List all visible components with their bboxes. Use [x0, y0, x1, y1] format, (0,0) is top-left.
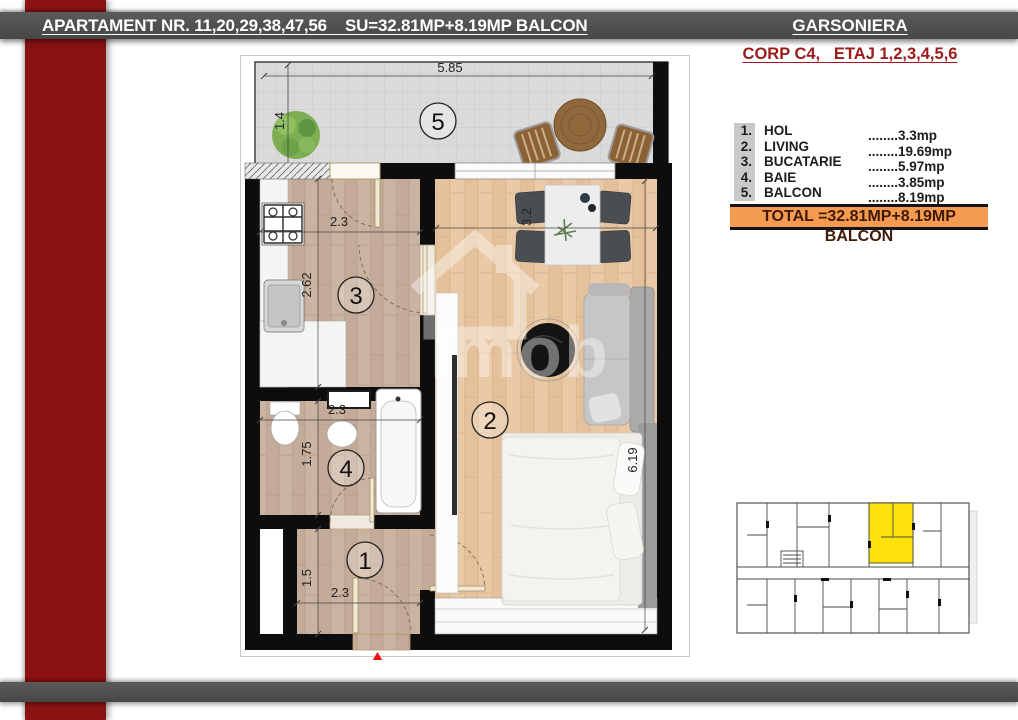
- room-number-balcon: 5: [431, 109, 444, 136]
- dim-bath-width: 2.3: [328, 402, 346, 417]
- entry-door-opening: [353, 634, 410, 650]
- dim-kitchen-depth: 2.62: [299, 272, 314, 297]
- hatched-wall: [245, 163, 330, 179]
- room-number-baie: 4: [339, 456, 352, 483]
- stove: [262, 203, 304, 245]
- dim-kitchen-width: 2.3: [330, 214, 348, 229]
- room-legend: 1. HOL ........3.3mp 2. LIVING ........1…: [734, 123, 990, 201]
- dim-bath-depth: 1.75: [299, 441, 314, 466]
- hall-living-opening: [420, 529, 435, 590]
- legend-row: 1. HOL ........3.3mp: [734, 123, 990, 139]
- apartment-type-label: GARSONIERA: [700, 12, 1000, 39]
- dim-hall-width: 2.3: [331, 585, 349, 600]
- bathroom-door-opening: [330, 515, 374, 529]
- bathroom-sink: [327, 421, 357, 447]
- bathtub: [376, 389, 421, 513]
- dim-living-depth: 6.19: [625, 447, 640, 472]
- header-bar: APARTAMENT NR. 11,20,29,38,47,56 SU=32.8…: [0, 12, 1018, 39]
- dim-balcony-depth: 1.4: [272, 112, 287, 130]
- footer-bar: [0, 682, 1018, 702]
- room-number-hol: 1: [358, 548, 371, 575]
- dim-balcony-width: 5.85: [437, 60, 462, 75]
- room-number-bucatarie: 3: [349, 283, 362, 310]
- key-plan: [733, 497, 978, 647]
- corp-etaj-label: CORP C4, ETAJ 1,2,3,4,5,6: [700, 45, 1000, 64]
- svg-text:Imob: Imob: [430, 313, 610, 393]
- shaft-niche: [260, 529, 283, 634]
- kitchen-sink: [264, 280, 304, 332]
- dim-living-width: 3.2: [519, 208, 534, 226]
- toilet: [270, 402, 300, 445]
- floorplan-page: APARTAMENT NR. 11,20,29,38,47,56 SU=32.8…: [0, 0, 1018, 720]
- room-number-living: 2: [483, 408, 496, 435]
- total-area-banner: TOTAL =32.81MP+8.19MP BALCON: [730, 204, 988, 230]
- dim-hall-depth: 1.5: [299, 569, 314, 587]
- floor-plan: 5.85 1.4 5: [240, 55, 690, 660]
- balcony-door-opening: [330, 163, 380, 179]
- highlighted-unit: [869, 503, 913, 563]
- balcony: 5.85 1.4 5: [255, 60, 668, 171]
- accent-bar: [25, 0, 106, 720]
- balcony-table: [554, 99, 606, 151]
- apartment-title: APARTAMENT NR. 11,20,29,38,47,56 SU=32.8…: [42, 12, 587, 39]
